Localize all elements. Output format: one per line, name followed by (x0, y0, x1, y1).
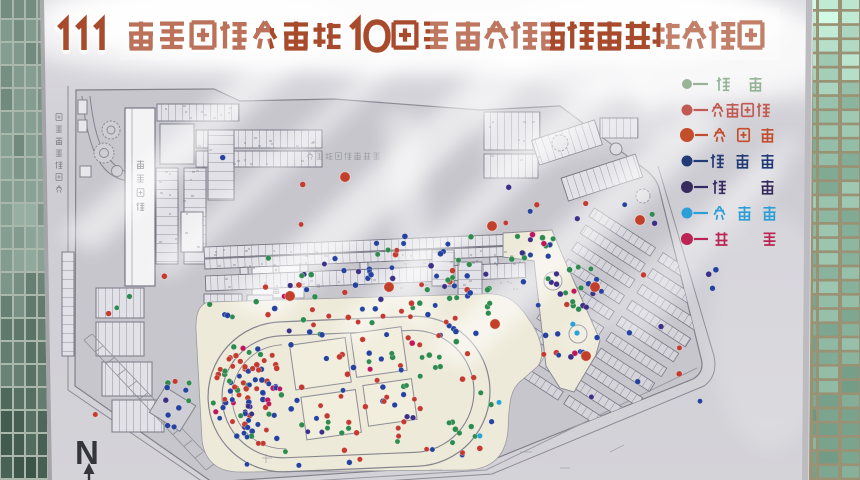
svg-text:N: N (75, 434, 99, 471)
